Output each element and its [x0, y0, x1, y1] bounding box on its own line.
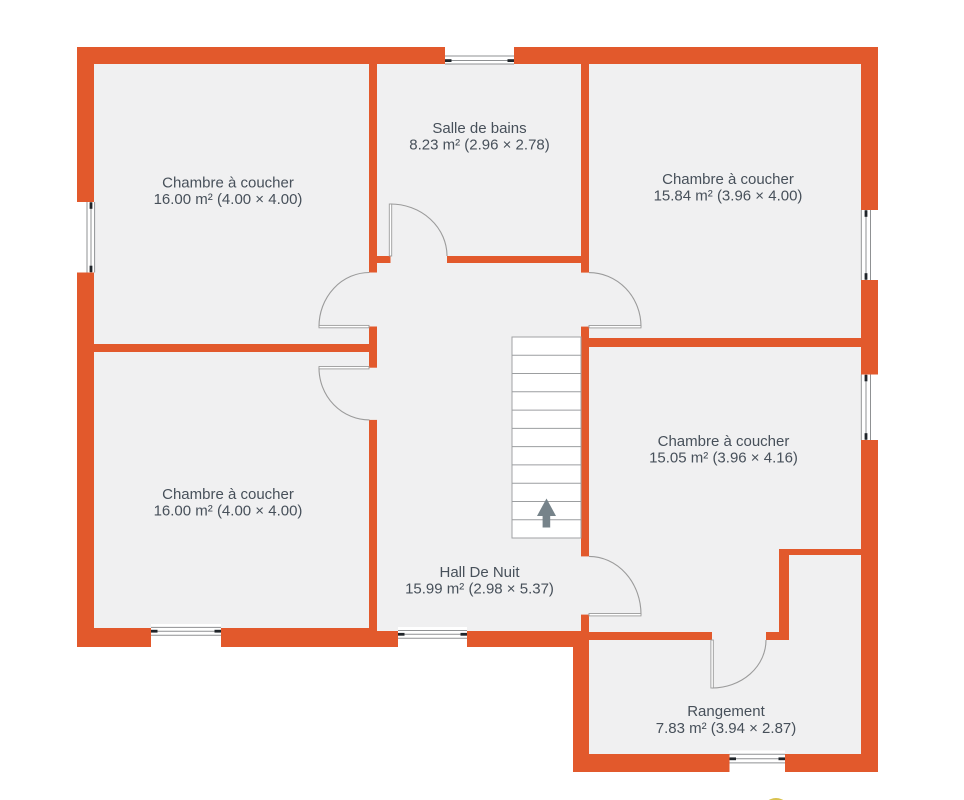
svg-text:Chambre à coucher: Chambre à coucher — [662, 171, 794, 188]
svg-text:7.83 m² (3.94 × 2.87): 7.83 m² (3.94 × 2.87) — [656, 720, 797, 737]
svg-text:Rangement: Rangement — [687, 703, 765, 720]
svg-text:Chambre à coucher: Chambre à coucher — [162, 175, 294, 192]
svg-text:Chambre à coucher: Chambre à coucher — [162, 486, 294, 503]
svg-text:15.05 m² (3.96 × 4.16): 15.05 m² (3.96 × 4.16) — [649, 450, 798, 467]
svg-text:Salle de bains: Salle de bains — [432, 120, 526, 137]
svg-text:15.84 m² (3.96 × 4.00): 15.84 m² (3.96 × 4.00) — [654, 187, 803, 204]
svg-text:8.23 m² (2.96 × 2.78): 8.23 m² (2.96 × 2.78) — [409, 136, 550, 153]
svg-text:16.00 m² (4.00 × 4.00): 16.00 m² (4.00 × 4.00) — [154, 502, 303, 519]
svg-text:15.99 m² (2.98 × 5.37): 15.99 m² (2.98 × 5.37) — [405, 580, 554, 597]
svg-text:Chambre à coucher: Chambre à coucher — [658, 433, 790, 450]
svg-text:16.00 m² (4.00 × 4.00): 16.00 m² (4.00 × 4.00) — [154, 191, 303, 208]
svg-text:Hall De Nuit: Hall De Nuit — [439, 564, 520, 581]
